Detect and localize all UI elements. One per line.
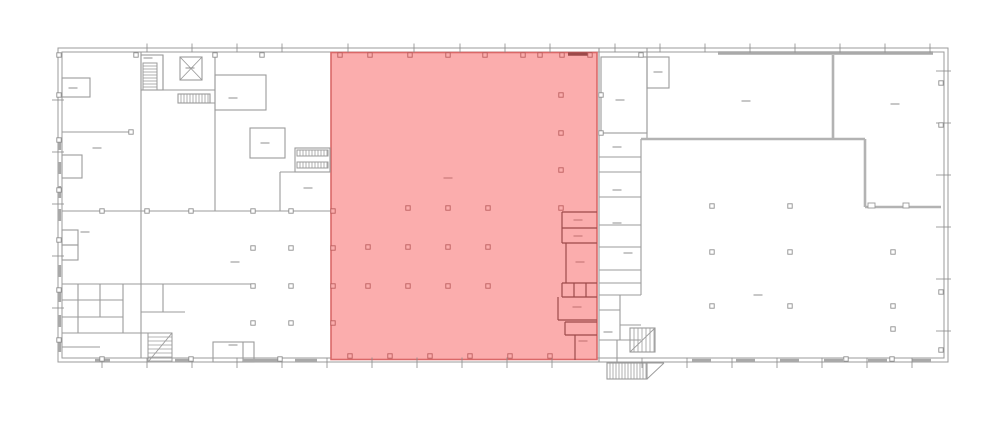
floor-plan xyxy=(0,0,1000,426)
floor-plan-canvas xyxy=(0,0,1000,426)
highlight-layer xyxy=(331,53,597,360)
highlighted-zone[interactable] xyxy=(331,53,597,360)
